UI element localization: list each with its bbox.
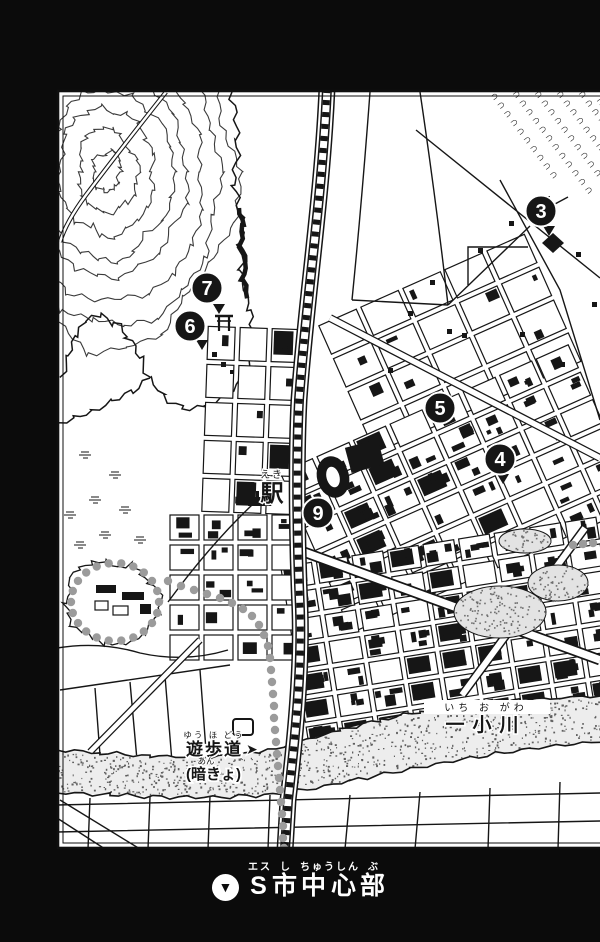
culvert-label: (暗きょ) <box>186 765 241 783</box>
station-label: 駅 <box>261 480 284 506</box>
marker-number: 5 <box>434 398 445 420</box>
down-triangle-icon: ▼ <box>219 879 233 895</box>
map-caption: ▼ Sエス市し中心ちゅうしん部ぶ <box>0 862 600 902</box>
marker-number: 9 <box>312 503 323 525</box>
map-marker-9: 9 <box>303 498 334 529</box>
caption-disc: ▼ <box>212 874 239 901</box>
river-label: 一小川 <box>445 714 526 736</box>
caption-title: Sエス市し中心ちゅうしん部ぶ <box>248 862 388 902</box>
city-map: ∩∩∩∩∩∩∩∩∩∩∩∩∩∩∩∩∩∩∩∩∩∩∩∩∩∩∩∩∩∩∩∩∩∩∩∩∩∩∩∩… <box>0 0 600 942</box>
marker-number: 3 <box>535 201 546 223</box>
manga-map-page: ∩∩∩∩∩∩∩∩∩∩∩∩∩∩∩∩∩∩∩∩∩∩∩∩∩∩∩∩∩∩∩∩∩∩∩∩∩∩∩∩… <box>0 0 600 942</box>
promenade-furigana: ゆう ほ どう <box>183 730 244 740</box>
marker-number: 4 <box>494 449 506 471</box>
culvert-furigana: あん <box>197 756 215 766</box>
river-furigana: いち お がわ <box>444 701 528 714</box>
promenade-arrow-icon: ➤ <box>246 741 258 757</box>
map-marker-5: 5 <box>425 393 456 424</box>
marker-number: 7 <box>201 278 212 300</box>
marker-number: 6 <box>184 316 195 338</box>
